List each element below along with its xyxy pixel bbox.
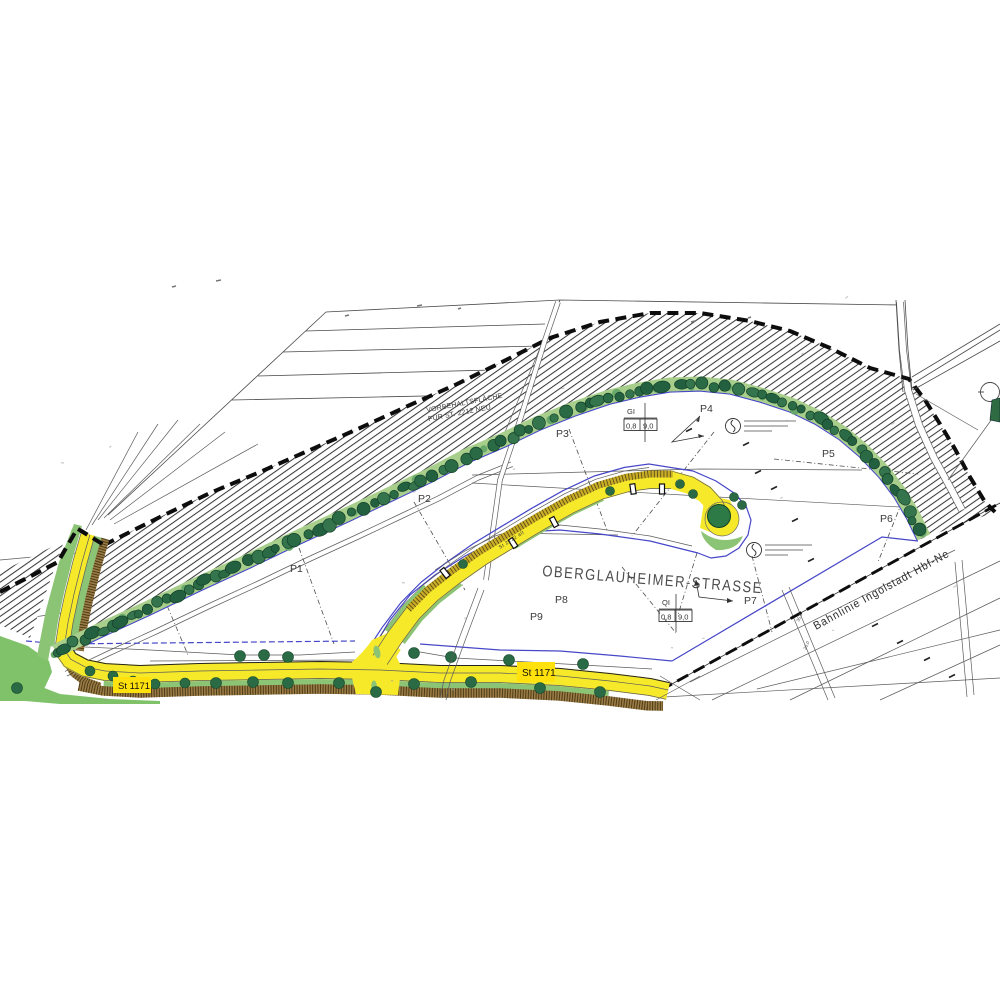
svg-text:P7: P7 bbox=[744, 595, 757, 607]
svg-text:St 1171: St 1171 bbox=[118, 681, 150, 692]
svg-text:9,0: 9,0 bbox=[678, 613, 688, 622]
svg-text:0,8: 0,8 bbox=[661, 613, 671, 622]
svg-text:0,8: 0,8 bbox=[626, 422, 636, 431]
svg-text:P4: P4 bbox=[700, 403, 713, 415]
svg-text:P8: P8 bbox=[555, 594, 568, 606]
svg-text:P1: P1 bbox=[290, 563, 303, 575]
svg-text:9,0: 9,0 bbox=[643, 422, 653, 431]
svg-text:St 1171: St 1171 bbox=[522, 668, 556, 679]
svg-text:QI: QI bbox=[662, 598, 670, 607]
svg-text:P6: P6 bbox=[880, 513, 893, 525]
svg-text:P2: P2 bbox=[418, 493, 431, 505]
svg-text:GI: GI bbox=[627, 407, 635, 416]
svg-text:P3: P3 bbox=[556, 428, 569, 440]
svg-text:P5: P5 bbox=[822, 448, 835, 460]
svg-text:P9: P9 bbox=[530, 611, 543, 623]
